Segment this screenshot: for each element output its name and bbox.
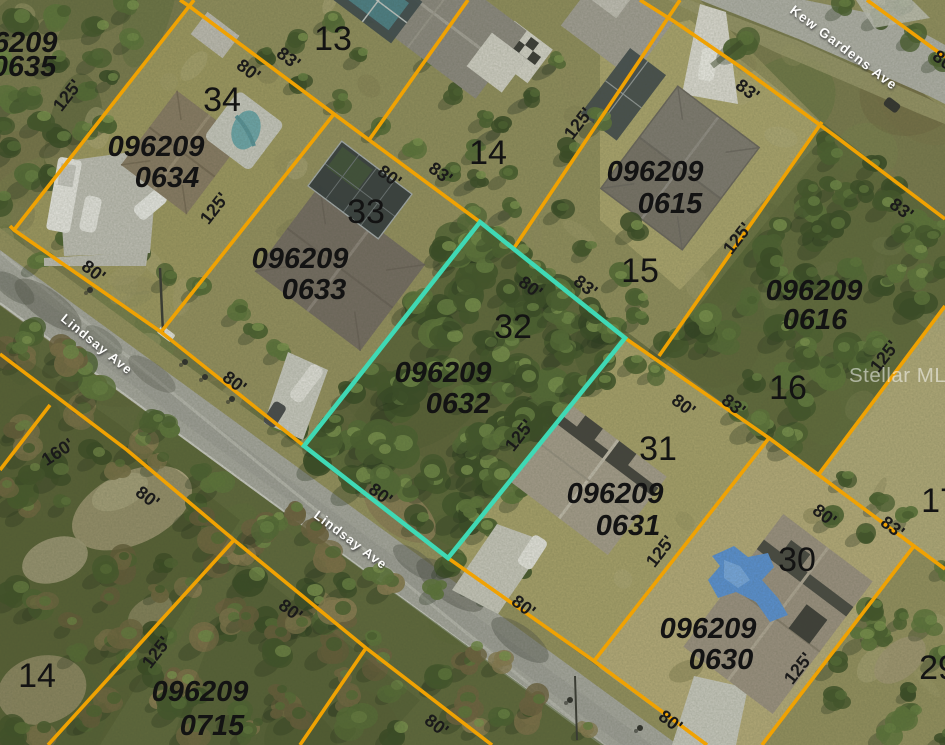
svg-text:30: 30 — [778, 541, 816, 579]
svg-text:17: 17 — [921, 482, 945, 520]
svg-text:Stellar MLS: Stellar MLS — [849, 364, 945, 387]
svg-text:0635: 0635 — [0, 51, 57, 83]
svg-text:096209: 096209 — [660, 613, 757, 645]
svg-text:096209: 096209 — [567, 478, 664, 510]
svg-text:32: 32 — [494, 308, 532, 346]
svg-text:0630: 0630 — [689, 644, 754, 676]
svg-text:096209: 096209 — [607, 156, 704, 188]
svg-text:14: 14 — [18, 657, 56, 695]
svg-text:096209: 096209 — [152, 676, 249, 708]
svg-text:0633: 0633 — [282, 274, 347, 306]
svg-text:0616: 0616 — [783, 304, 848, 336]
svg-text:15: 15 — [621, 252, 659, 290]
svg-text:096209: 096209 — [395, 357, 492, 389]
svg-text:0632: 0632 — [426, 388, 491, 420]
svg-text:14: 14 — [469, 134, 507, 172]
svg-text:29: 29 — [919, 649, 945, 687]
svg-text:31: 31 — [639, 430, 677, 468]
svg-text:0631: 0631 — [596, 510, 661, 542]
svg-text:16: 16 — [769, 369, 807, 407]
svg-text:0715: 0715 — [180, 710, 245, 742]
svg-text:33: 33 — [347, 193, 385, 231]
svg-text:096209: 096209 — [252, 243, 349, 275]
svg-text:096209: 096209 — [108, 131, 205, 163]
svg-text:0634: 0634 — [135, 162, 200, 194]
svg-text:096209: 096209 — [766, 275, 863, 307]
svg-text:13: 13 — [314, 20, 352, 58]
svg-text:0615: 0615 — [638, 188, 703, 220]
svg-text:34: 34 — [203, 81, 241, 119]
